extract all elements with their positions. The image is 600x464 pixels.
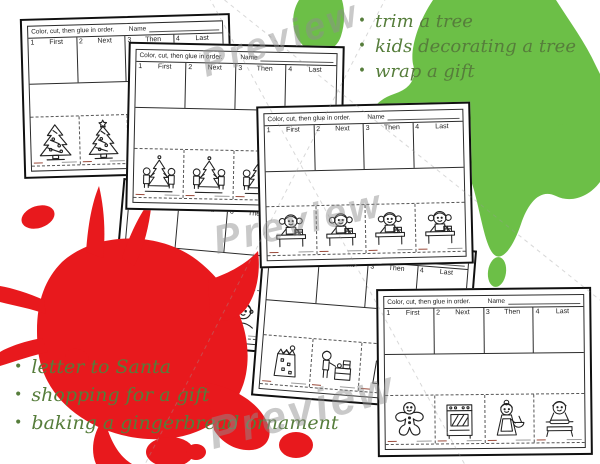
list-item: •wrap a gift [358, 60, 576, 85]
instructions-text: Color, cut, then glue in order. [31, 26, 129, 36]
christmas-tree-image [33, 119, 76, 162]
sequence-box-first: 1First [28, 37, 78, 83]
sequence-box-next: 2Next [77, 36, 127, 82]
name-label: Name [129, 25, 147, 32]
list-item: •trim a tree [358, 10, 576, 35]
cut-cell [79, 115, 129, 164]
boy-rolling-dough-image [538, 397, 580, 439]
list-item: •letter to Santa [14, 354, 339, 382]
girl-wrapping-gift-image [419, 206, 462, 249]
christmas-tree-with-star-image [82, 118, 125, 161]
kids-decorating-tree-image [137, 152, 180, 195]
name-underline [149, 22, 219, 32]
writing-desk-image [171, 287, 217, 333]
mailbox-image [122, 283, 168, 329]
woman-with-mixing-bowl-image [488, 398, 530, 440]
kids-decorating-tree-image [187, 153, 230, 196]
top-theme-list: •trim a tree •kids decorating a tree •wr… [358, 10, 576, 85]
oven-image [438, 398, 480, 440]
preview-collage: Color, cut, then glue in order. Name 1Fi… [0, 0, 600, 464]
worksheet-page-baking-a-gingerbread: Color, cut, then glue in order. Name 1Fi… [376, 287, 593, 457]
list-item: •kids decorating a tree [358, 35, 576, 60]
cut-cell [31, 116, 81, 165]
